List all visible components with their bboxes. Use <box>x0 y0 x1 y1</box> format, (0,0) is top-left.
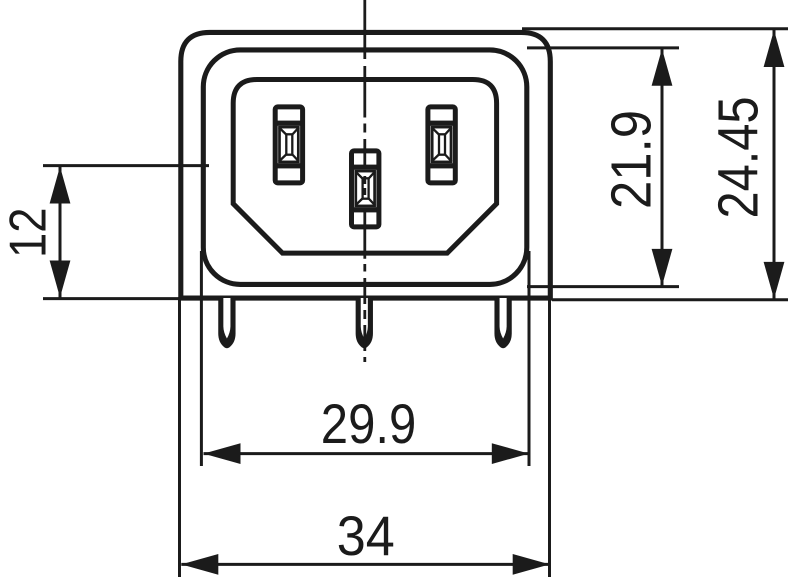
svg-text:24.45: 24.45 <box>707 97 771 219</box>
svg-text:34: 34 <box>337 505 395 567</box>
svg-text:21.9: 21.9 <box>600 110 664 209</box>
svg-text:29.9: 29.9 <box>321 393 417 455</box>
svg-text:12: 12 <box>0 208 57 259</box>
